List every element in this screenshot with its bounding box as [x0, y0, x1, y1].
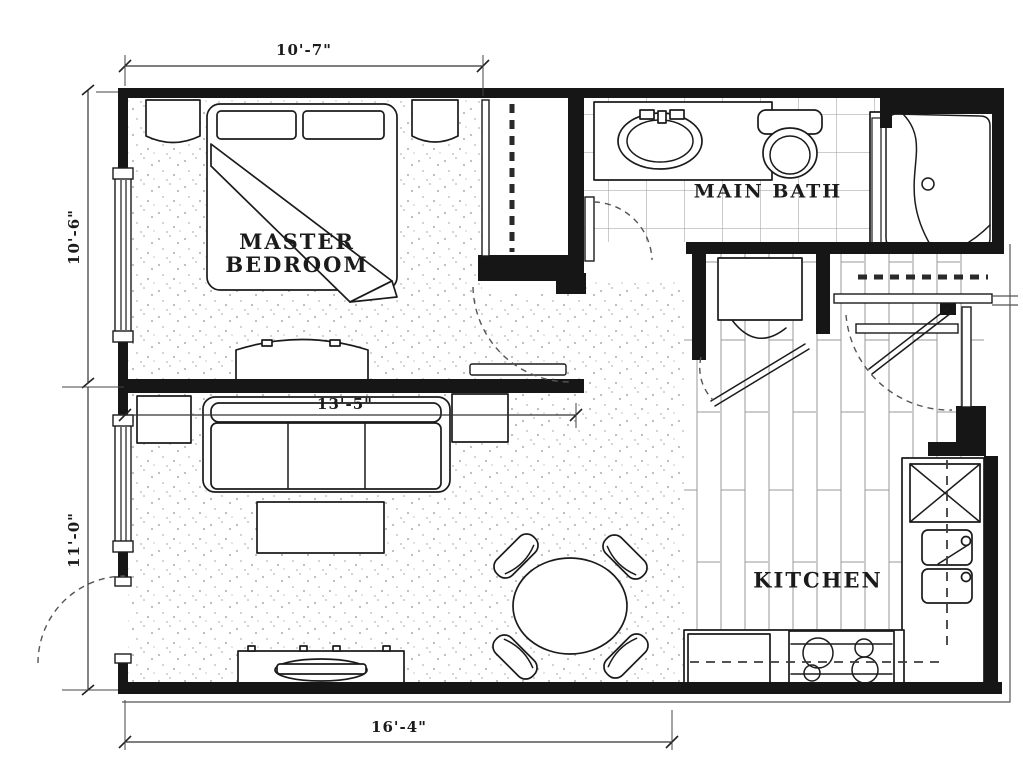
shower-enclosure	[870, 112, 994, 250]
master-bedroom-label-line1: MASTER	[225, 230, 368, 253]
dining-table	[513, 558, 627, 654]
dresser-knob-right	[330, 340, 340, 346]
patio-door-swing	[38, 576, 125, 663]
dim-left-lower-text: 11'-0"	[65, 512, 83, 568]
sofa-seats	[211, 423, 441, 489]
faucet-right	[670, 110, 684, 119]
wall-closet-step	[556, 273, 586, 294]
kitchen-label: KITCHEN	[753, 568, 882, 591]
console-knob-1	[248, 646, 255, 651]
dishwasher	[688, 634, 770, 684]
wall-bath-shower-nib-v	[880, 96, 892, 128]
dim-bottom-text: 16'-4"	[371, 718, 427, 736]
end-table-right	[452, 394, 508, 442]
patio-door-jamb-top	[115, 577, 131, 586]
console-knob-4	[383, 646, 390, 651]
entry-landing-lines	[992, 296, 1018, 305]
wall-top	[118, 88, 1004, 98]
end-table-left	[137, 396, 191, 443]
nightstand-right	[412, 100, 458, 142]
wall-entry-thin-v	[962, 307, 971, 407]
tv-bar	[277, 664, 366, 674]
wall-bottom	[118, 682, 1002, 694]
bedroom-door-leaf	[470, 364, 566, 375]
nightstand-left	[146, 100, 200, 143]
wall-utility-right	[816, 254, 830, 334]
dim-top-text: 10'-7"	[276, 41, 332, 59]
coffee-table	[257, 502, 384, 553]
wall-entry-thin-h	[834, 294, 992, 303]
main-bath-label: MAIN BATH	[694, 182, 843, 203]
window-lower-cap-bottom	[113, 541, 133, 552]
wall-bath-shower-nib-h	[880, 96, 1004, 114]
wall-bath-south	[686, 242, 1004, 254]
entry-shelf	[856, 324, 958, 333]
wall-divider	[118, 379, 584, 393]
patio-door-jamb-bottom	[115, 654, 131, 663]
dim-middle-text: 13'-5"	[317, 395, 373, 413]
window-lower-frame	[115, 423, 131, 545]
dim-left-upper-text: 10'-6"	[65, 209, 83, 265]
wall-utility-left	[692, 254, 706, 360]
master-bedroom-label-line2: BEDROOM	[225, 253, 368, 276]
window-upper-cap-top	[113, 168, 133, 179]
sink-knob-2	[962, 573, 971, 582]
console-knob-2	[300, 646, 307, 651]
carpet-hall-strip	[584, 282, 684, 393]
wall-right-lower	[984, 456, 998, 694]
pillow-left	[217, 111, 296, 139]
washer	[718, 258, 802, 320]
master-bedroom-label: MASTER BEDROOM	[225, 230, 368, 276]
wall-closet-west-thin	[482, 100, 489, 256]
floorplan-drawing	[0, 0, 1023, 768]
pillow-right	[303, 111, 384, 139]
window-upper-cap-bottom	[113, 331, 133, 342]
faucet-spout	[658, 111, 666, 123]
dresser	[236, 340, 368, 381]
window-upper-frame	[115, 176, 131, 334]
faucet-left	[640, 110, 654, 119]
console-knob-3	[333, 646, 340, 651]
sink-knob-1	[962, 537, 971, 546]
floorplan-canvas: MASTER BEDROOM MAIN BATH KITCHEN 10'-7" …	[0, 0, 1023, 768]
dresser-knob-left	[262, 340, 272, 346]
bath-door-leaf	[585, 197, 594, 261]
